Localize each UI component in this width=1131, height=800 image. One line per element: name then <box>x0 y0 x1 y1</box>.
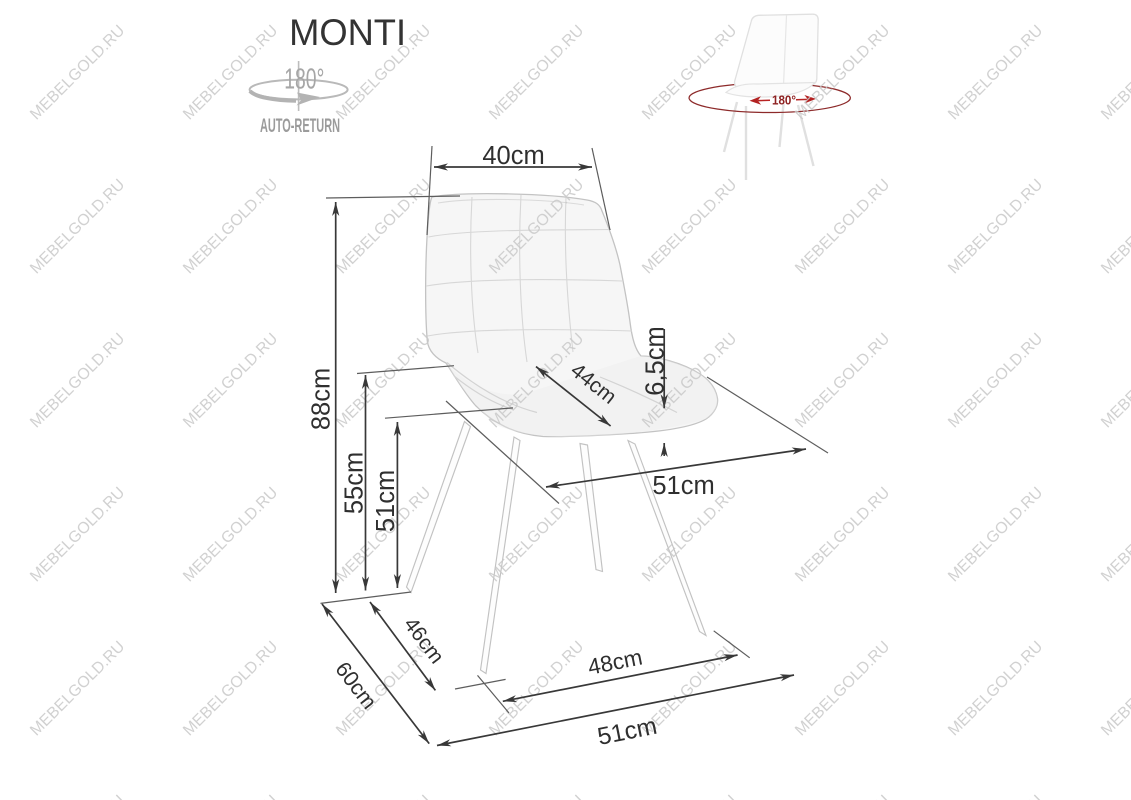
svg-text:MEBELGOLD.RU: MEBELGOLD.RU <box>945 330 1046 431</box>
svg-text:MEBELGOLD.RU: MEBELGOLD.RU <box>180 330 281 431</box>
svg-text:MEBELGOLD.RU: MEBELGOLD.RU <box>1098 22 1131 123</box>
svg-text:MEBELGOLD.RU: MEBELGOLD.RU <box>27 22 128 123</box>
svg-text:MEBELGOLD.RU: MEBELGOLD.RU <box>333 176 434 277</box>
svg-text:MEBELGOLD.RU: MEBELGOLD.RU <box>180 22 281 123</box>
svg-text:MEBELGOLD.RU: MEBELGOLD.RU <box>792 330 893 431</box>
svg-text:MEBELGOLD.RU: MEBELGOLD.RU <box>1098 638 1131 739</box>
svg-text:MEBELGOLD.RU: MEBELGOLD.RU <box>1098 792 1131 800</box>
svg-text:MEBELGOLD.RU: MEBELGOLD.RU <box>27 792 128 800</box>
svg-text:MEBELGOLD.RU: MEBELGOLD.RU <box>27 484 128 585</box>
svg-text:MEBELGOLD.RU: MEBELGOLD.RU <box>639 792 740 800</box>
svg-text:51cm: 51cm <box>372 470 400 532</box>
svg-text:MEBELGOLD.RU: MEBELGOLD.RU <box>639 176 740 277</box>
svg-text:MEBELGOLD.RU: MEBELGOLD.RU <box>333 792 434 800</box>
svg-text:MONTI: MONTI <box>289 11 406 53</box>
svg-text:MEBELGOLD.RU: MEBELGOLD.RU <box>792 176 893 277</box>
svg-text:MEBELGOLD.RU: MEBELGOLD.RU <box>27 330 128 431</box>
svg-text:MEBELGOLD.RU: MEBELGOLD.RU <box>27 176 128 277</box>
svg-text:180°: 180° <box>772 94 796 108</box>
svg-text:MEBELGOLD.RU: MEBELGOLD.RU <box>945 176 1046 277</box>
svg-text:40cm: 40cm <box>482 142 544 170</box>
svg-text:MEBELGOLD.RU: MEBELGOLD.RU <box>180 638 281 739</box>
svg-text:MEBELGOLD.RU: MEBELGOLD.RU <box>486 792 587 800</box>
svg-text:MEBELGOLD.RU: MEBELGOLD.RU <box>486 638 587 739</box>
svg-text:MEBELGOLD.RU: MEBELGOLD.RU <box>945 22 1046 123</box>
svg-text:MEBELGOLD.RU: MEBELGOLD.RU <box>486 22 587 123</box>
svg-text:AUTO-RETURN: AUTO-RETURN <box>260 115 340 137</box>
svg-text:MEBELGOLD.RU: MEBELGOLD.RU <box>180 176 281 277</box>
svg-text:MEBELGOLD.RU: MEBELGOLD.RU <box>180 792 281 800</box>
svg-text:MEBELGOLD.RU: MEBELGOLD.RU <box>945 484 1046 585</box>
svg-text:MEBELGOLD.RU: MEBELGOLD.RU <box>945 792 1046 800</box>
svg-text:MEBELGOLD.RU: MEBELGOLD.RU <box>1098 330 1131 431</box>
svg-text:MEBELGOLD.RU: MEBELGOLD.RU <box>639 22 740 123</box>
svg-text:MEBELGOLD.RU: MEBELGOLD.RU <box>1098 176 1131 277</box>
svg-text:MEBELGOLD.RU: MEBELGOLD.RU <box>180 484 281 585</box>
svg-text:MEBELGOLD.RU: MEBELGOLD.RU <box>1098 484 1131 585</box>
svg-text:51cm: 51cm <box>595 713 659 751</box>
svg-text:6,5cm: 6,5cm <box>642 326 670 395</box>
svg-text:MEBELGOLD.RU: MEBELGOLD.RU <box>27 638 128 739</box>
svg-text:MEBELGOLD.RU: MEBELGOLD.RU <box>792 484 893 585</box>
svg-text:MEBELGOLD.RU: MEBELGOLD.RU <box>792 792 893 800</box>
svg-text:MEBELGOLD.RU: MEBELGOLD.RU <box>945 638 1046 739</box>
svg-text:MEBELGOLD.RU: MEBELGOLD.RU <box>333 330 434 431</box>
svg-text:MEBELGOLD.RU: MEBELGOLD.RU <box>792 638 893 739</box>
svg-text:180°: 180° <box>284 64 324 96</box>
svg-text:88cm: 88cm <box>307 368 335 430</box>
svg-text:55cm: 55cm <box>340 452 368 514</box>
svg-text:51cm: 51cm <box>652 472 714 500</box>
